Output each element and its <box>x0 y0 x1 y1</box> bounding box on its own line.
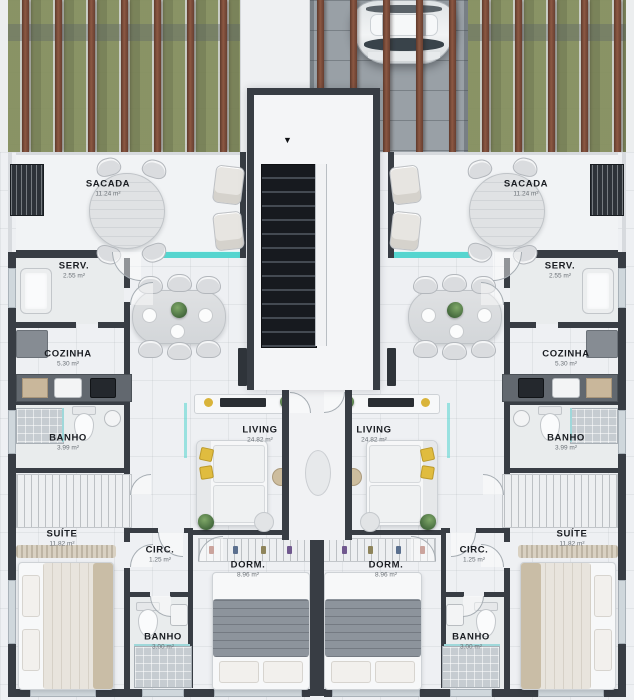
shower-glass <box>444 644 500 646</box>
cutting-board <box>22 378 48 398</box>
wall <box>130 528 158 533</box>
door-swing <box>130 282 153 305</box>
floor-plan-image: SACADA 11.24 m² SERV. 2.55 m² COZINHA 5.… <box>0 0 634 700</box>
yellow-pillow <box>199 465 214 480</box>
door-swing <box>130 544 153 567</box>
pergola-slat <box>220 0 227 152</box>
pergola-slat <box>449 0 456 152</box>
wall <box>16 322 76 328</box>
stair-steps <box>261 164 317 348</box>
table-plant <box>447 302 463 318</box>
green-facade-left <box>8 0 240 152</box>
wall <box>16 468 130 473</box>
pergola-slat <box>22 0 29 152</box>
stair-stringer <box>315 164 327 346</box>
pergola-slat <box>482 0 489 152</box>
window <box>618 268 626 308</box>
wall <box>124 406 130 476</box>
yellow-pillow <box>199 447 214 462</box>
plate <box>477 308 492 323</box>
dining-chair <box>167 274 192 292</box>
yellow-pillow <box>420 447 435 462</box>
dining-chair <box>413 276 438 294</box>
car-windshield <box>364 38 444 51</box>
pergola-slat <box>383 0 390 152</box>
bed-throw <box>521 563 541 689</box>
wall <box>282 390 289 540</box>
pillow <box>263 661 303 683</box>
shower <box>442 646 500 688</box>
window <box>332 689 420 697</box>
blanket <box>325 599 421 657</box>
stairwell-left-wall <box>247 88 254 390</box>
balcony-round-table <box>469 173 545 249</box>
door-swing <box>290 392 311 413</box>
glass-partition <box>184 402 187 458</box>
dorm-bed <box>212 572 310 690</box>
dorm-bed <box>324 572 422 690</box>
clothes <box>396 546 401 554</box>
plate <box>198 308 213 323</box>
wall <box>130 592 150 597</box>
wall <box>441 592 464 597</box>
shower-glass <box>570 408 572 442</box>
window <box>8 268 16 308</box>
grill <box>590 164 624 216</box>
dining-chair <box>196 340 221 358</box>
wall <box>504 568 510 689</box>
kitchen-sink <box>552 378 580 398</box>
shower <box>570 408 618 444</box>
pillow <box>375 661 415 683</box>
door-swing <box>451 532 476 557</box>
car-top-view <box>352 0 456 64</box>
dining-chair <box>196 276 221 294</box>
plate <box>421 308 436 323</box>
balcony-round-table <box>89 173 165 249</box>
door-swing <box>158 532 183 557</box>
balcony-railing <box>16 152 240 155</box>
clothes <box>368 546 373 554</box>
window <box>618 580 626 644</box>
cooktop <box>90 378 116 398</box>
cooktop <box>518 378 544 398</box>
suite-wardrobe <box>502 474 618 528</box>
sofa-cushion <box>213 445 265 483</box>
sofa-cushion <box>369 445 421 483</box>
window <box>538 689 604 697</box>
wall <box>504 468 618 473</box>
suite-wardrobe <box>16 474 132 528</box>
yellow-pillow <box>420 465 435 480</box>
table-plant <box>171 302 187 318</box>
fridge <box>16 330 48 358</box>
suite-rug <box>16 545 116 558</box>
pouf <box>254 512 274 532</box>
blanket <box>213 599 309 657</box>
dining-chair <box>167 342 192 360</box>
plate <box>142 308 157 323</box>
door-swing <box>481 544 504 567</box>
floor-plant <box>420 514 436 530</box>
dining-chair <box>471 340 496 358</box>
wall <box>504 406 510 476</box>
wall <box>98 322 130 328</box>
stairs-down-arrow: ▼ <box>283 136 292 145</box>
pillow <box>22 629 40 671</box>
car-hood <box>368 52 440 61</box>
bathroom-sink <box>170 604 188 626</box>
pillow <box>594 629 612 671</box>
car-roof <box>370 14 438 36</box>
tv <box>220 398 266 407</box>
door-swing <box>481 282 504 305</box>
clothes <box>261 546 266 554</box>
bathroom-sink <box>446 604 464 626</box>
cutting-board <box>586 378 612 398</box>
pillow <box>331 661 371 683</box>
stairwell-top-wall <box>247 88 380 95</box>
shower-glass <box>62 408 64 442</box>
car-rear-window <box>366 5 442 13</box>
grill <box>10 164 44 216</box>
wall <box>124 568 130 689</box>
lounge-chair <box>389 164 422 205</box>
balcony-railing <box>394 152 618 155</box>
wall <box>476 528 504 533</box>
stairwell: ▼ <box>247 88 380 390</box>
glass-partition <box>447 402 450 458</box>
laundry-tub <box>20 268 52 314</box>
pouf <box>360 512 380 532</box>
plate <box>449 324 464 339</box>
dining-chair <box>442 274 467 292</box>
bathroom-sink <box>513 410 530 427</box>
shower <box>16 408 64 444</box>
door-swing <box>483 474 504 495</box>
stairwell-right-wall <box>373 88 380 390</box>
window <box>142 689 184 697</box>
center-party-wall <box>310 540 324 696</box>
pergola-slat <box>416 0 423 152</box>
suite-rug <box>518 545 618 558</box>
window <box>8 580 16 644</box>
pergola-slat <box>515 0 522 152</box>
plate <box>170 324 185 339</box>
wall <box>170 592 193 597</box>
wall <box>345 390 352 540</box>
green-facade-right <box>468 0 626 152</box>
pergola-slat <box>614 0 621 152</box>
fridge <box>586 330 618 358</box>
hall-rug <box>305 450 331 496</box>
clothes <box>342 546 347 554</box>
pergola-slat <box>581 0 588 152</box>
dining-chair <box>138 340 163 358</box>
bathroom-sink <box>104 410 121 427</box>
lounge-chair <box>389 211 422 252</box>
pillow <box>22 575 40 617</box>
door-swing <box>324 392 345 413</box>
wall <box>484 592 504 597</box>
pergola-slat <box>154 0 161 152</box>
bed-throw <box>93 563 113 689</box>
pergola-slat <box>88 0 95 152</box>
shower <box>134 646 192 688</box>
kitchen-sink <box>54 378 82 398</box>
fruit-bowl <box>204 398 213 407</box>
dining-chair <box>442 342 467 360</box>
facade-shadow-band <box>468 24 626 41</box>
floor-plant <box>198 514 214 530</box>
pergola-slat <box>548 0 555 152</box>
clothes <box>233 546 238 554</box>
window <box>8 410 16 454</box>
fruit-bowl <box>421 398 430 407</box>
pergola-slat <box>121 0 128 152</box>
wall <box>504 322 536 328</box>
central-corridor <box>282 390 352 540</box>
pergola-slat <box>55 0 62 152</box>
lounge-chair <box>212 211 245 252</box>
window <box>30 689 96 697</box>
shower-glass <box>134 644 190 646</box>
unit-entry-door <box>387 348 396 386</box>
pergola-slat <box>187 0 194 152</box>
laundry-tub <box>582 268 614 314</box>
window <box>450 689 492 697</box>
clothes <box>287 546 292 554</box>
window <box>618 410 626 454</box>
pillow <box>594 575 612 617</box>
tv <box>368 398 414 407</box>
window <box>214 689 302 697</box>
wall <box>504 528 510 542</box>
door-swing <box>130 474 151 495</box>
suite-bed <box>520 562 616 690</box>
suite-bed <box>18 562 114 690</box>
unit-entry-door <box>238 348 247 386</box>
lounge-chair <box>212 164 245 205</box>
wall <box>558 322 618 328</box>
pillow <box>219 661 259 683</box>
dining-chair <box>413 340 438 358</box>
